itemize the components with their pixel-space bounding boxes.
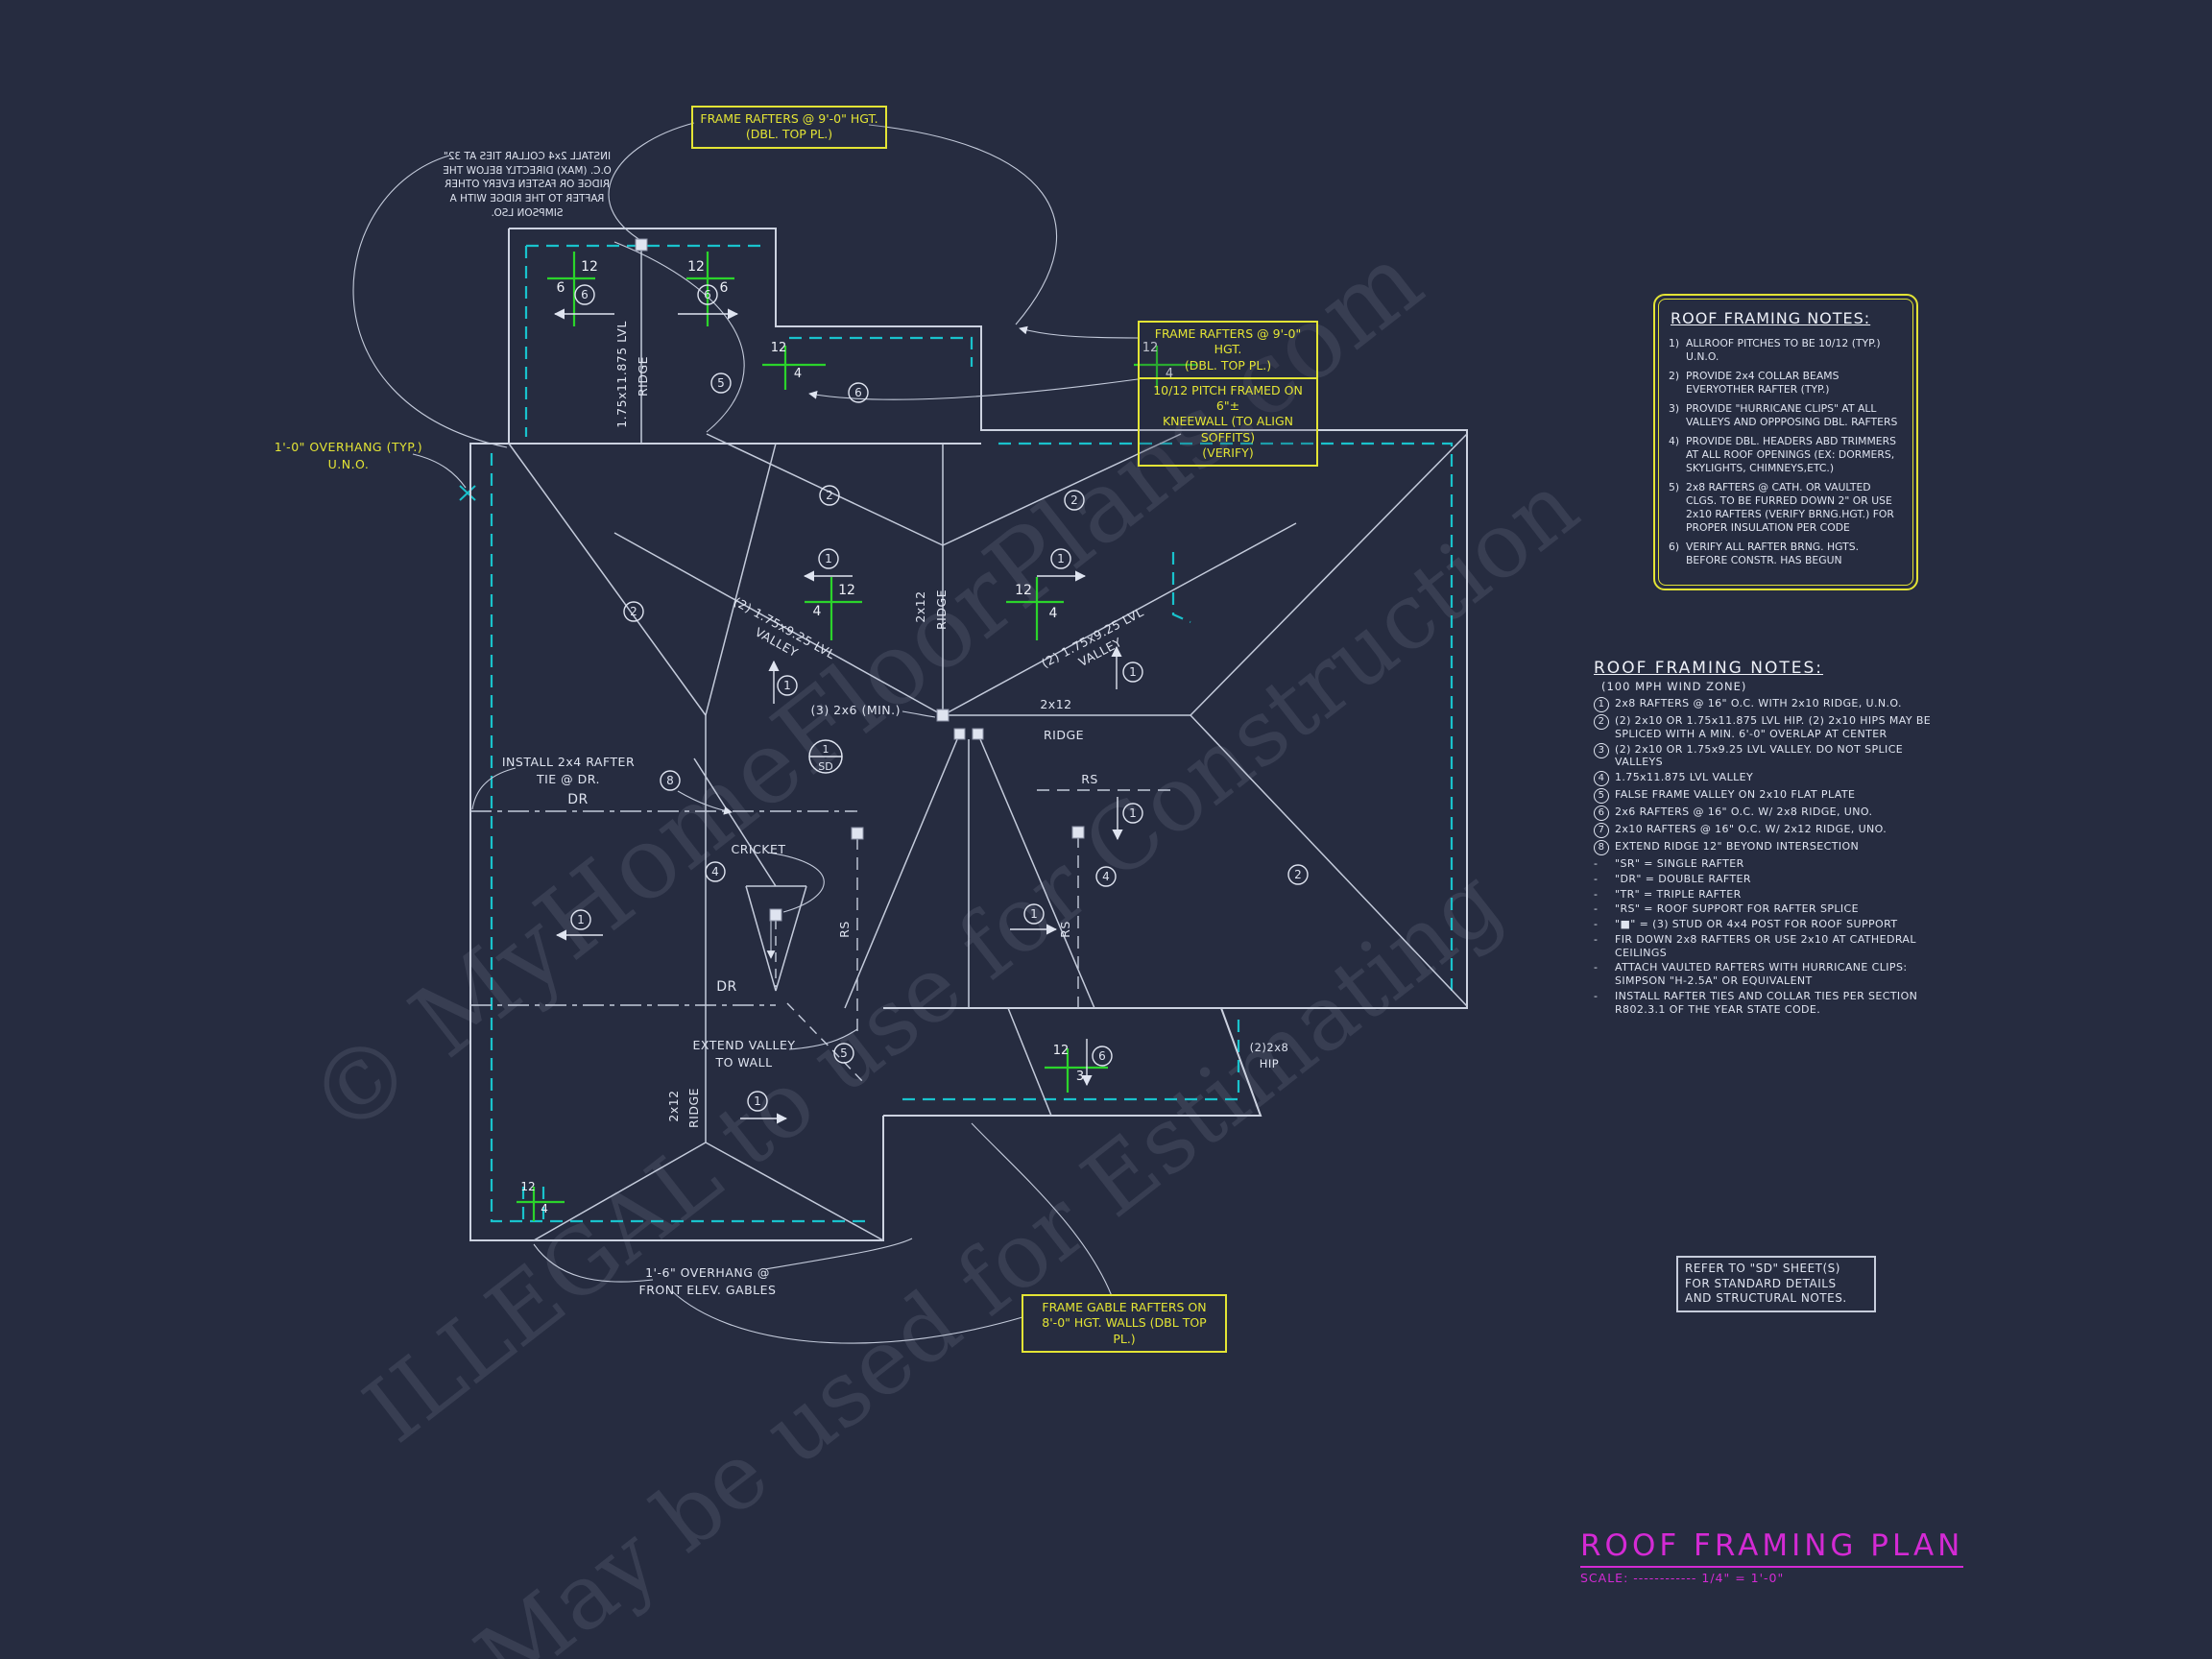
collar-tie-note-mirrored: INSTALL 2x4 COLLAR TIES AT 32" O.C. (MAX… [427, 150, 627, 220]
ridge-label-vertical: 2x12 [913, 590, 927, 622]
hip-label: HIP [1260, 1057, 1279, 1070]
note-text: "RS" = ROOF SUPPORT FOR RAFTER SPLICE [1615, 902, 1859, 916]
pitch-rise: 4 [794, 367, 802, 381]
node-marker [852, 828, 863, 839]
callout-line: FRAME RAFTERS @ 9'-0" HGT. [699, 111, 879, 127]
note-text: FALSE FRAME VALLEY ON 2x10 FLAT PLATE [1615, 788, 1855, 804]
note-number: 1) [1669, 337, 1686, 364]
callout-line: 8'-0" HGT. WALLS (DBL TOP PL.) [1029, 1315, 1219, 1347]
keynote-bubble: 3 [1594, 743, 1615, 770]
callout-frame-rafters-top: FRAME RAFTERS @ 9'-0" HGT. (DBL. TOP PL.… [691, 106, 887, 149]
keynote-number: 1 [1129, 665, 1137, 679]
detail-sheet: SD [818, 760, 832, 773]
hip-label: (2)2x8 [1250, 1041, 1289, 1054]
keynote-1: 1 [774, 661, 797, 704]
keynote-1: 1 [740, 1092, 786, 1118]
keynote-number: 2 [1294, 868, 1302, 881]
rafter-tie-label: TIE @ DR. [536, 772, 600, 786]
note-number: 3) [1669, 402, 1686, 429]
ridge-label-vertical: 2x12 [666, 1090, 681, 1121]
gable-line [845, 733, 1094, 1008]
pitch-rise: 6 [720, 280, 729, 296]
pitch-rise: 4 [541, 1202, 548, 1215]
note-item: 1)ALLROOF PITCHES TO BE 10/12 (TYP.) U.N… [1669, 337, 1903, 364]
callout-kneewall-stack: FRAME RAFTERS @ 9'-0" HGT. (DBL. TOP PL.… [1138, 321, 1316, 467]
note-number: 5) [1669, 481, 1686, 535]
leader-line [902, 711, 935, 717]
keynote-number: 1 [825, 552, 832, 565]
leader-line [869, 125, 1057, 325]
refer-line: REFER TO "SD" SHEET(S) [1685, 1262, 1867, 1277]
cyan-x-marker [460, 486, 475, 500]
keynote-number: 1 [1129, 806, 1137, 820]
plan-labels: (2) 1.75x9.25 LVL VALLEY (2) 1.75x9.25 L… [275, 321, 1289, 1297]
keynote-1: 1 [1010, 904, 1056, 929]
keynote-2: 2 [1065, 491, 1084, 510]
keynote-number: 6 [854, 386, 862, 399]
leader-line [678, 791, 732, 812]
framing-note-item: -"SR" = SINGLE RAFTER [1594, 857, 1939, 871]
framing-note-item: 8EXTEND RIDGE 12" BEYOND INTERSECTION [1594, 840, 1939, 855]
framing-note-item: -FIR DOWN 2x8 RAFTERS OR USE 2x10 AT CAT… [1594, 933, 1939, 960]
note-text: EXTEND RIDGE 12" BEYOND INTERSECTION [1615, 840, 1859, 855]
callout-pitch-kneewall: 10/12 PITCH FRAMED ON 6"± KNEEWALL (TO A… [1138, 377, 1318, 467]
pitch-marker: 12 4 [1006, 577, 1064, 640]
pitch-rise: 3 [1076, 1070, 1084, 1084]
hip-line [1190, 434, 1467, 715]
keynote-bubble: 1 [1594, 697, 1615, 712]
keynote-bubble: 7 [1594, 823, 1615, 838]
node-marker [1072, 827, 1084, 838]
dash-bullet: - [1594, 857, 1615, 871]
note-text: 2x10 RAFTERS @ 16" O.C. W/ 2x12 RIDGE, U… [1615, 823, 1887, 838]
leader-line [1020, 328, 1138, 338]
note-text: (2) 2x10 OR 1.75x11.875 LVL HIP. (2) 2x1… [1615, 714, 1939, 741]
front-overhang-label: FRONT ELEV. GABLES [639, 1283, 777, 1297]
framing-note-item: 41.75x11.875 LVL VALLEY [1594, 771, 1939, 786]
keynote-4: 4 [706, 862, 725, 881]
dr-label: DR [716, 979, 737, 995]
extend-valley-label: TO WALL [714, 1055, 772, 1070]
keynote-5: 5 [834, 1044, 854, 1063]
keynote-bubble: 8 [1594, 840, 1615, 855]
overhang-dashed-line [902, 1020, 1238, 1099]
drawing-title-block: ROOF FRAMING PLAN SCALE: ------------ 1/… [1580, 1528, 1963, 1585]
note-line: SIMPSON LSO. [427, 206, 627, 221]
min-rafter-label: (3) 2x6 (MIN.) [810, 703, 901, 717]
note-line: O.C. (MAX) DIRECTLY BELOW THE [427, 164, 627, 179]
post-node-markers [636, 239, 1084, 921]
pitch-marker: 12 6 [547, 252, 598, 326]
pitch-run: 12 [687, 259, 705, 275]
keynote-number: 5 [717, 376, 725, 390]
framing-note-item: -"DR" = DOUBLE RAFTER [1594, 873, 1939, 886]
keynote-number: 5 [840, 1046, 848, 1060]
overhang-label-line: 1'-0" OVERHANG (TYP.) [275, 440, 422, 454]
hip-line [534, 1142, 883, 1240]
keynote-6: 6 [1087, 1039, 1112, 1085]
node-marker [954, 729, 965, 739]
lvl-ridge-label-vertical: 1.75x11.875 LVL [614, 321, 629, 428]
ridge-label: 2x12 [1040, 697, 1071, 711]
dash-bullet: - [1594, 933, 1615, 960]
wind-zone-subheading: (100 MPH WIND ZONE) [1601, 680, 1939, 693]
keynote-5: 5 [711, 373, 731, 393]
callout-line: (VERIFY) [1145, 445, 1310, 461]
keynote-1: 1 [1118, 797, 1142, 839]
framing-note-item: -INSTALL RAFTER TIES AND COLLAR TIES PER… [1594, 990, 1939, 1017]
refer-line: AND STRUCTURAL NOTES. [1685, 1291, 1867, 1307]
callout-frame-rafters-mid: FRAME RAFTERS @ 9'-0" HGT. (DBL. TOP PL.… [1138, 321, 1318, 379]
keynote-number: 8 [666, 774, 674, 787]
wall-line [509, 228, 1467, 1008]
keynote-1: 1 [805, 549, 853, 576]
framing-note-item: 12x8 RAFTERS @ 16" O.C. WITH 2x10 RIDGE,… [1594, 697, 1939, 712]
keynote-1: 1 [1037, 549, 1085, 576]
overhang-left-label: 1'-0" OVERHANG (TYP.) U.N.O. [275, 440, 422, 471]
cricket-label: CRICKET [731, 842, 785, 856]
note-text: 2x6 RAFTERS @ 16" O.C. W/ 2x8 RIDGE, UNO… [1615, 805, 1872, 821]
note-item: 4)PROVIDE DBL. HEADERS ABD TRIMMERS AT A… [1669, 435, 1903, 475]
note-text: (2) 2x10 OR 1.75x9.25 LVL VALLEY. DO NOT… [1615, 743, 1939, 770]
framing-note-item: -ATTACH VAULTED RAFTERS WITH HURRICANE C… [1594, 961, 1939, 988]
note-text: FIR DOWN 2x8 RAFTERS OR USE 2x10 AT CATH… [1615, 933, 1939, 960]
keynote-1: 1 [557, 910, 603, 935]
dash-bullet: - [1594, 990, 1615, 1017]
hip-line [1190, 715, 1467, 1006]
note-text: "DR" = DOUBLE RAFTER [1615, 873, 1751, 886]
framing-note-item: 2(2) 2x10 OR 1.75x11.875 LVL HIP. (2) 2x… [1594, 714, 1939, 741]
notes-box-heading: ROOF FRAMING NOTES: [1671, 309, 1903, 327]
extend-valley-label: EXTEND VALLEY [693, 1038, 796, 1052]
keynote-2: 2 [624, 602, 643, 621]
framing-note-item: 62x6 RAFTERS @ 16" O.C. W/ 2x8 RIDGE, UN… [1594, 805, 1939, 821]
refer-to-sd-note: REFER TO "SD" SHEET(S) FOR STANDARD DETA… [1676, 1256, 1876, 1312]
dash-bullet: - [1594, 902, 1615, 916]
note-number: 6) [1669, 541, 1686, 567]
roof-framing-lines [509, 245, 1467, 1240]
detail-number: 1 [823, 743, 829, 756]
framing-notes-heading: ROOF FRAMING NOTES: [1594, 659, 1939, 678]
note-item: 3)PROVIDE "HURRICANE CLIPS" AT ALL VALLE… [1669, 402, 1903, 429]
callout-line: FRAME GABLE RAFTERS ON [1029, 1300, 1219, 1315]
note-line: RAFTER TO THE RIDGE WITH A [427, 192, 627, 206]
note-line: RIDGE OR FASTEN EVERY OTHER [427, 178, 627, 192]
ridge-label: RIDGE [1044, 728, 1084, 742]
dr-label: DR [567, 792, 589, 807]
callout-line: 10/12 PITCH FRAMED ON 6"± [1145, 383, 1310, 415]
keynote-number: 6 [581, 288, 589, 301]
keynote-bubble: 6 [1594, 805, 1615, 821]
keynote-6: 6 [849, 383, 868, 402]
keynote-number: 2 [1070, 493, 1078, 507]
keynote-bubble: 2 [1594, 714, 1615, 741]
hip-line [509, 444, 776, 715]
keynote-8: 8 [661, 771, 680, 790]
keynote-bubble: 5 [1594, 788, 1615, 804]
ridge-label-vertical: RIDGE [686, 1088, 701, 1128]
keynote-number: 1 [577, 913, 585, 926]
leader-line [614, 242, 744, 432]
note-text: 2x8 RAFTERS @ 16" O.C. WITH 2x10 RIDGE, … [1615, 697, 1902, 712]
pitch-rise: 4 [813, 604, 822, 619]
leader-line [672, 1291, 1022, 1343]
node-marker [973, 729, 983, 739]
keynote-bubble: 4 [1594, 771, 1615, 786]
keynote-number: 4 [711, 865, 719, 878]
keynote-number: 4 [1102, 870, 1110, 883]
blueprint-sheet: © MyHomeFloorPlans.com ILLEGAL to use fo… [0, 0, 2212, 1659]
note-line: INSTALL 2x4 COLLAR TIES AT 32" [427, 150, 627, 164]
keynote-1: 1 [1117, 647, 1142, 689]
rs-label-vertical: RS [1058, 921, 1072, 938]
roof-framing-notes-inner: ROOF FRAMING NOTES: 1)ALLROOF PITCHES TO… [1658, 299, 1913, 586]
leader-line [765, 1238, 912, 1269]
pitch-run: 12 [771, 341, 787, 355]
note-text: VERIFY ALL RAFTER BRNG. HGTS. BEFORE CON… [1686, 541, 1903, 567]
dash-bullet: - [1594, 918, 1615, 931]
keynote-2: 2 [1288, 865, 1308, 884]
note-text: "TR" = TRIPLE RAFTER [1615, 888, 1742, 902]
rs-label-vertical: RS [837, 921, 852, 938]
note-item: 2)PROVIDE 2x4 COLLAR BEAMS EVERYOTHER RA… [1669, 370, 1903, 397]
note-text: 2x8 RAFTERS @ CATH. OR VAULTED CLGS. TO … [1686, 481, 1903, 535]
framing-note-item: 72x10 RAFTERS @ 16" O.C. W/ 2x12 RIDGE, … [1594, 823, 1939, 838]
keynote-number: 1 [1030, 907, 1038, 921]
note-item: 6)VERIFY ALL RAFTER BRNG. HGTS. BEFORE C… [1669, 541, 1903, 567]
overhang-label-line: U.N.O. [328, 457, 370, 471]
framing-note-item: 5FALSE FRAME VALLEY ON 2x10 FLAT PLATE [1594, 788, 1939, 804]
note-text: "■" = (3) STUD OR 4x4 POST FOR ROOF SUPP… [1615, 918, 1897, 931]
note-number: 2) [1669, 370, 1686, 397]
pitch-run: 12 [520, 1180, 535, 1193]
refer-line: FOR STANDARD DETAILS [1685, 1277, 1867, 1292]
leader-line [413, 454, 466, 488]
pitch-run: 12 [838, 583, 855, 598]
dash-bullet: - [1594, 961, 1615, 988]
node-marker [636, 239, 647, 251]
framing-note-item: -"TR" = TRIPLE RAFTER [1594, 888, 1939, 902]
note-number: 4) [1669, 435, 1686, 475]
keynote-number: 1 [1057, 552, 1065, 565]
leader-line [534, 1244, 653, 1282]
callout-line: KNEEWALL (TO ALIGN SOFFITS) [1145, 414, 1310, 445]
front-overhang-label: 1'-6" OVERHANG @ [645, 1265, 770, 1280]
keynote-number: 6 [1098, 1049, 1106, 1063]
roof-framing-notes-list: ROOF FRAMING NOTES: (100 MPH WIND ZONE) … [1594, 659, 1939, 1018]
leader-line [972, 1123, 1112, 1296]
note-text: INSTALL RAFTER TIES AND COLLAR TIES PER … [1615, 990, 1939, 1017]
roof-framing-notes-box: ROOF FRAMING NOTES: 1)ALLROOF PITCHES TO… [1653, 294, 1918, 590]
note-item: 5)2x8 RAFTERS @ CATH. OR VAULTED CLGS. T… [1669, 481, 1903, 535]
keynote-4: 4 [1096, 867, 1116, 886]
callout-gable-rafters-bottom: FRAME GABLE RAFTERS ON 8'-0" HGT. WALLS … [1022, 1294, 1227, 1353]
rs-label: RS [1081, 772, 1098, 786]
callout-line: (DBL. TOP PL.) [1145, 358, 1310, 373]
pitch-marker: 12 4 [805, 577, 862, 640]
rafter-tie-label: INSTALL 2x4 RAFTER [502, 755, 635, 769]
note-text: ALLROOF PITCHES TO BE 10/12 (TYP.) U.N.O… [1686, 337, 1903, 364]
pitch-run: 12 [1015, 583, 1032, 598]
ridge-label-vertical: RIDGE [934, 589, 949, 630]
note-text: PROVIDE "HURRICANE CLIPS" AT ALL VALLEYS… [1686, 402, 1903, 429]
dash-bullet: - [1594, 873, 1615, 886]
overhang-dashed-line [998, 444, 1452, 998]
drawing-scale: SCALE: ------------ 1/4" = 1'-0" [1580, 1571, 1963, 1585]
sd-detail-marker: 1 SD [809, 740, 842, 773]
framing-note-item: 3(2) 2x10 OR 1.75x9.25 LVL VALLEY. DO NO… [1594, 743, 1939, 770]
node-marker [770, 909, 781, 921]
node-marker [937, 709, 949, 721]
note-text: PROVIDE DBL. HEADERS ABD TRIMMERS AT ALL… [1686, 435, 1903, 475]
keynote-number: 2 [826, 489, 833, 502]
leader-line [768, 853, 824, 912]
note-text: ATTACH VAULTED RAFTERS WITH HURRICANE CL… [1615, 961, 1939, 988]
overhang-dashed-line [789, 338, 972, 367]
wall-line [470, 228, 883, 1240]
note-text: PROVIDE 2x4 COLLAR BEAMS EVERYOTHER RAFT… [1686, 370, 1903, 397]
dash-bullet: - [1594, 888, 1615, 902]
pitch-rise: 6 [557, 280, 565, 296]
callout-line: (DBL. TOP PL.) [699, 127, 879, 142]
note-text: "SR" = SINGLE RAFTER [1615, 857, 1744, 871]
keynote-number: 1 [783, 679, 791, 692]
leader-line [472, 768, 516, 809]
keynote-number: 6 [704, 288, 711, 301]
keynote-number: 2 [630, 605, 637, 618]
valley-line [707, 434, 1181, 545]
framing-note-item: -"■" = (3) STUD OR 4x4 POST FOR ROOF SUP… [1594, 918, 1939, 931]
x-mark-line [460, 486, 475, 500]
pitch-run: 12 [1053, 1044, 1070, 1058]
keynote-number: 1 [754, 1094, 761, 1108]
callout-line: FRAME RAFTERS @ 9'-0" HGT. [1145, 326, 1310, 358]
overhang-dashed-line [1173, 552, 1190, 622]
drawing-title: ROOF FRAMING PLAN [1580, 1528, 1963, 1568]
pitch-marker: 12 4 [762, 341, 826, 390]
pitch-rise: 4 [1049, 606, 1058, 621]
note-text: 1.75x11.875 LVL VALLEY [1615, 771, 1753, 786]
framing-note-item: -"RS" = ROOF SUPPORT FOR RAFTER SPLICE [1594, 902, 1939, 916]
lvl-ridge-label-vertical: RIDGE [636, 356, 650, 397]
pitch-run: 12 [581, 259, 598, 275]
